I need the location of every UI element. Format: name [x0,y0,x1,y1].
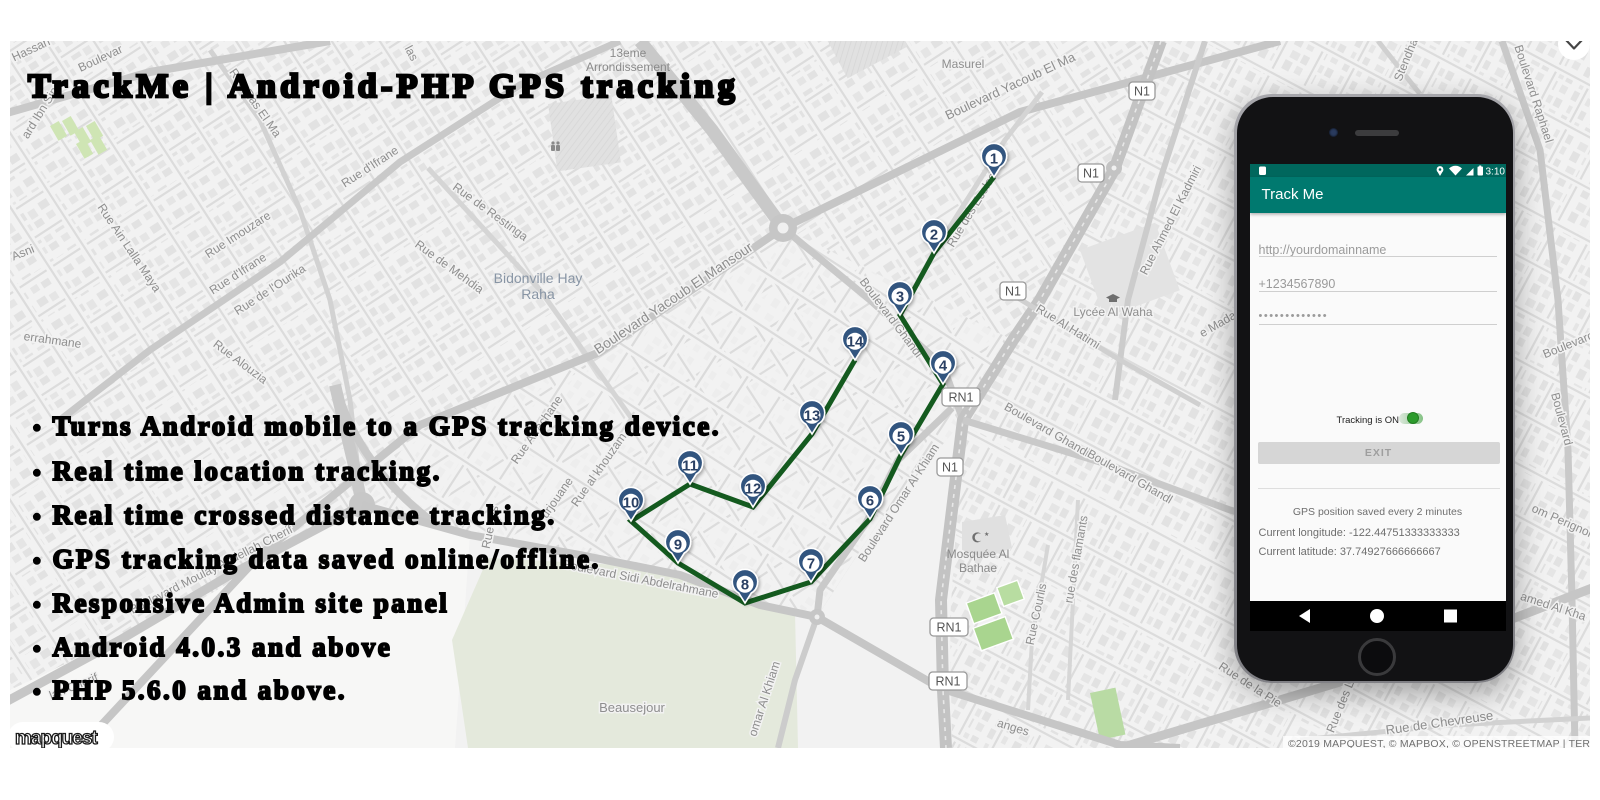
svg-text:N1: N1 [1083,167,1099,181]
svg-text:7: 7 [807,557,815,573]
svg-text:3: 3 [896,290,904,306]
svg-text:RN1: RN1 [936,621,961,635]
svg-text:11: 11 [682,459,698,475]
svg-text:N1: N1 [1134,85,1150,99]
svg-text:6: 6 [866,494,874,510]
svg-text:★: ★ [984,531,989,538]
svg-text:13eme: 13eme [610,46,647,60]
svg-text:5: 5 [897,430,905,446]
svg-text:Masurel: Masurel [942,57,985,71]
svg-text:1: 1 [990,152,998,168]
svg-text:12: 12 [745,482,761,498]
svg-text:14: 14 [847,335,864,351]
svg-text:3:10: 3:10 [1485,166,1505,177]
svg-text:©2019 MAPQUEST, © MAPBOX, © OP: ©2019 MAPQUEST, © MAPBOX, © OPENSTREETMA… [1288,738,1590,748]
svg-text:RN1: RN1 [935,675,960,689]
svg-text:N1: N1 [1005,285,1021,299]
svg-text:10: 10 [623,496,639,512]
svg-text:Bathae: Bathae [959,561,997,575]
svg-text:9: 9 [674,538,682,554]
svg-text:Mosquée Al: Mosquée Al [947,547,1010,561]
svg-text:8: 8 [741,578,749,594]
svg-text:N1: N1 [942,461,958,475]
svg-text:Lycée Al Waha: Lycée Al Waha [1073,305,1152,319]
svg-text:mapquest: mapquest [15,728,98,748]
svg-text:Raha: Raha [521,286,555,302]
svg-text:RN1: RN1 [948,391,973,405]
svg-text:2: 2 [930,228,938,244]
svg-text:13: 13 [804,409,820,425]
svg-text:4: 4 [939,359,948,375]
svg-text:Bidonville Hay: Bidonville Hay [494,270,583,286]
svg-text:Beausejour: Beausejour [599,700,665,715]
